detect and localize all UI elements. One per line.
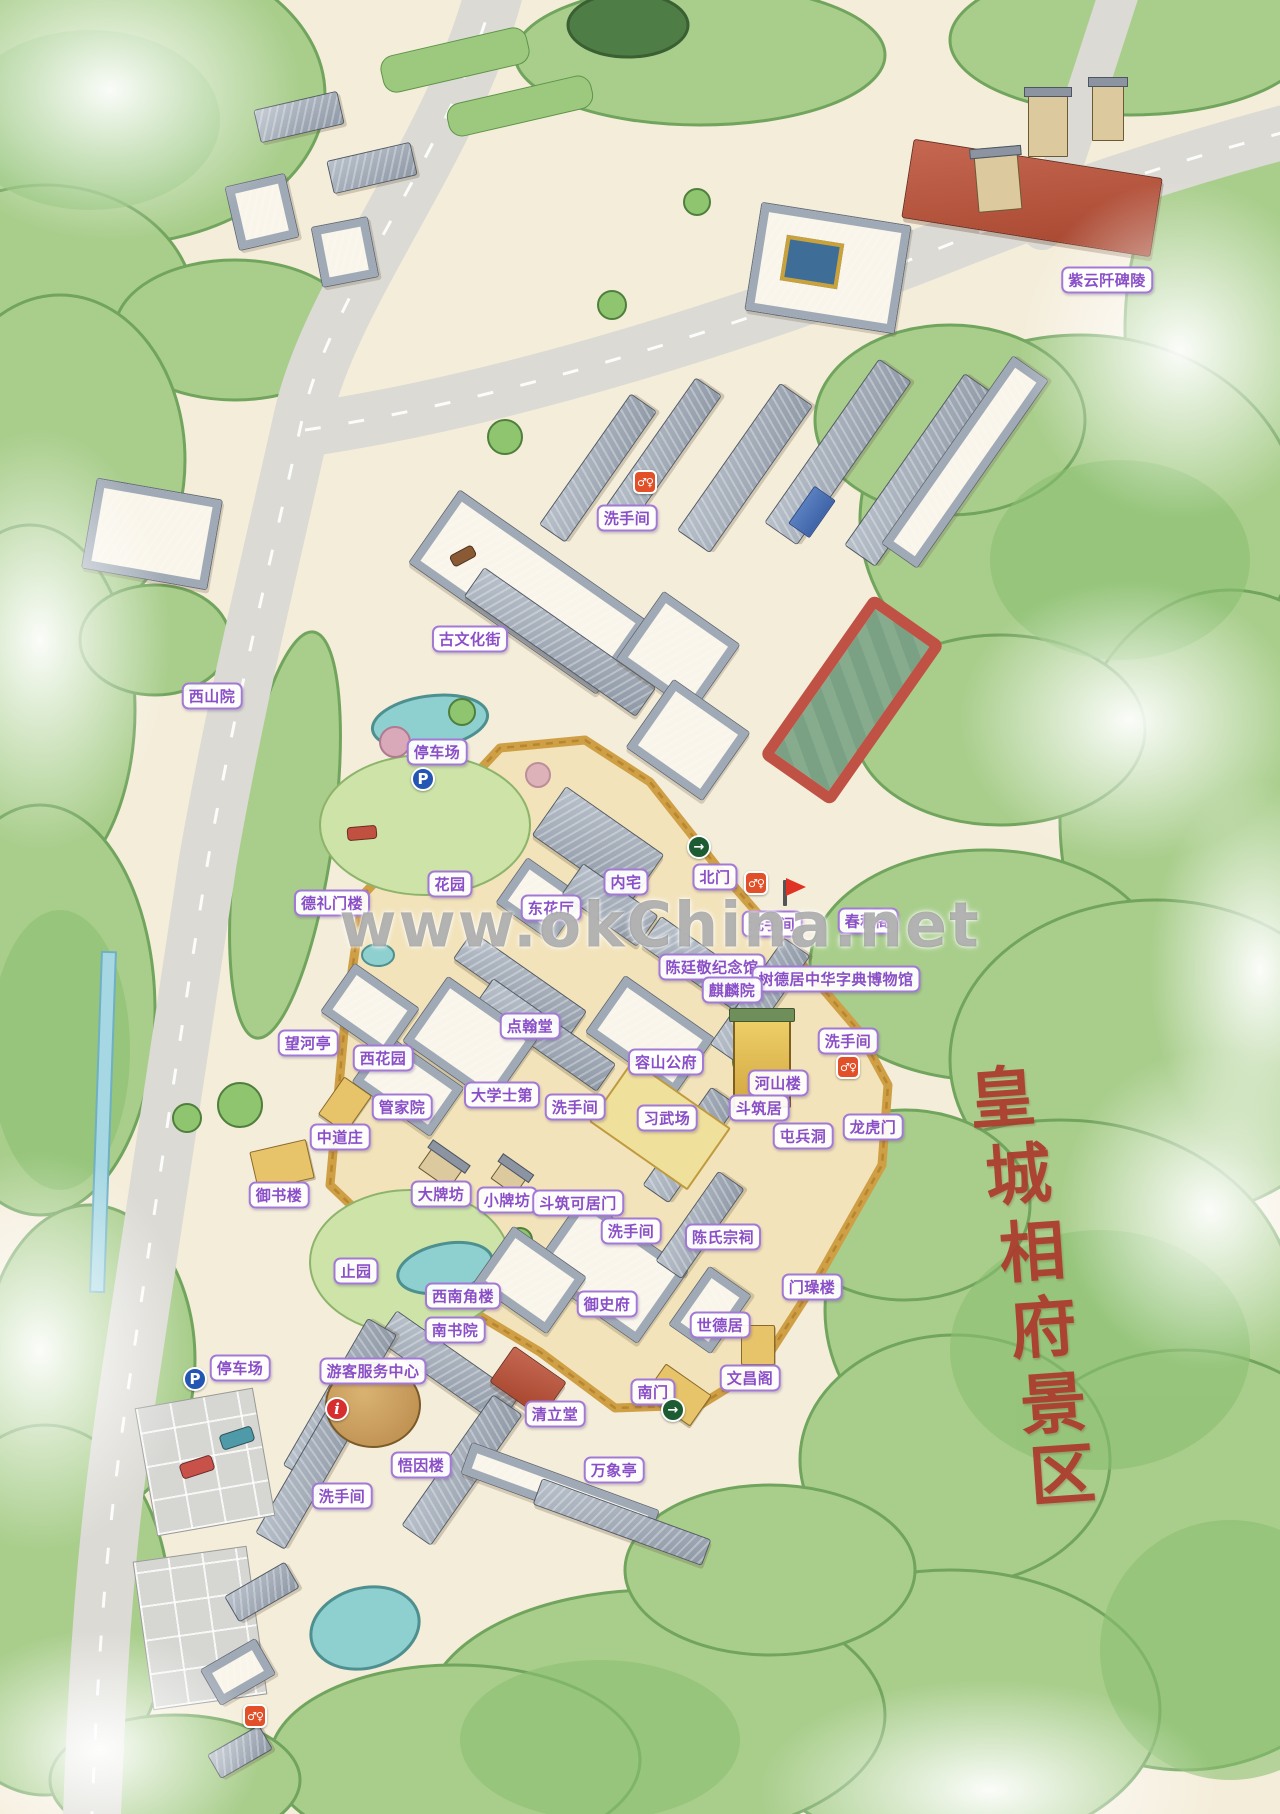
poi-label: 斗筑可居门 — [532, 1190, 624, 1217]
poi-label: 树德居中华字典博物馆 — [751, 966, 920, 993]
title-character: 区 — [1026, 1420, 1099, 1520]
poi-label: 西山院 — [182, 683, 243, 710]
restroom-icon: ♂♀ — [633, 470, 657, 494]
poi-label: 点翰堂 — [500, 1013, 561, 1040]
poi-label: 止园 — [333, 1258, 378, 1285]
poi-label: 门璪楼 — [782, 1274, 843, 1301]
poi-label: 陈氏宗祠 — [685, 1224, 761, 1251]
poi-label: 容山公府 — [628, 1049, 704, 1076]
exit-gate-icon: → — [661, 1398, 685, 1422]
poi-label: 古文化街 — [432, 626, 508, 653]
poi-label: 西南角楼 — [425, 1283, 501, 1310]
poi-label: 洗手间 — [818, 1028, 879, 1055]
poi-label: 大牌坊 — [411, 1181, 472, 1208]
poi-label: 麒麟院 — [702, 977, 763, 1004]
poi-label: 万象亭 — [584, 1457, 645, 1484]
poi-label: 小牌坊 — [477, 1187, 538, 1214]
poi-label: 屯兵洞 — [773, 1123, 834, 1150]
poi-label: 悟因楼 — [391, 1452, 452, 1479]
restroom-icon: ♂♀ — [243, 1704, 267, 1728]
poi-label: 御史府 — [577, 1291, 638, 1318]
illustrated-scenic-map: 紫云阡碑陵洗手间古文化街西山院停车场花园德礼门楼内宅北门东花厅洗手间春秋阁陈廷敬… — [0, 0, 1280, 1814]
poi-label: 习武场 — [637, 1105, 698, 1132]
poi-label: 中道庄 — [310, 1124, 371, 1151]
poi-label: 文昌阁 — [720, 1365, 781, 1392]
poi-label: 停车场 — [407, 739, 468, 766]
poi-label: 北门 — [692, 864, 737, 891]
poi-label: 望河亭 — [278, 1030, 339, 1057]
poi-label: 河山楼 — [748, 1070, 809, 1097]
poi-label: 清立堂 — [525, 1401, 586, 1428]
poi-label: 斗筑居 — [729, 1095, 790, 1122]
poi-label: 停车场 — [210, 1355, 271, 1382]
poi-label: 紫云阡碑陵 — [1061, 267, 1153, 294]
parking-icon: P — [183, 1367, 207, 1391]
poi-label: 南书院 — [425, 1317, 486, 1344]
poi-label: 洗手间 — [545, 1094, 606, 1121]
poi-label: 管家院 — [372, 1094, 433, 1121]
poi-label: 西花园 — [353, 1045, 414, 1072]
poi-label: 洗手间 — [597, 505, 658, 532]
poi-label: 游客服务中心 — [319, 1358, 426, 1385]
poi-label: 洗手间 — [312, 1483, 373, 1510]
restroom-icon: ♂♀ — [836, 1055, 860, 1079]
info-icon: i — [325, 1397, 349, 1421]
poi-label: 龙虎门 — [843, 1114, 904, 1141]
exit-gate-icon: → — [687, 835, 711, 859]
poi-label: 洗手间 — [601, 1218, 662, 1245]
parking-icon: P — [411, 767, 435, 791]
poi-label: 御书楼 — [249, 1182, 310, 1209]
poi-label: 世德居 — [690, 1312, 751, 1339]
watermark-text: www.okChina.net — [339, 889, 981, 962]
poi-label: 大学士第 — [464, 1082, 540, 1109]
